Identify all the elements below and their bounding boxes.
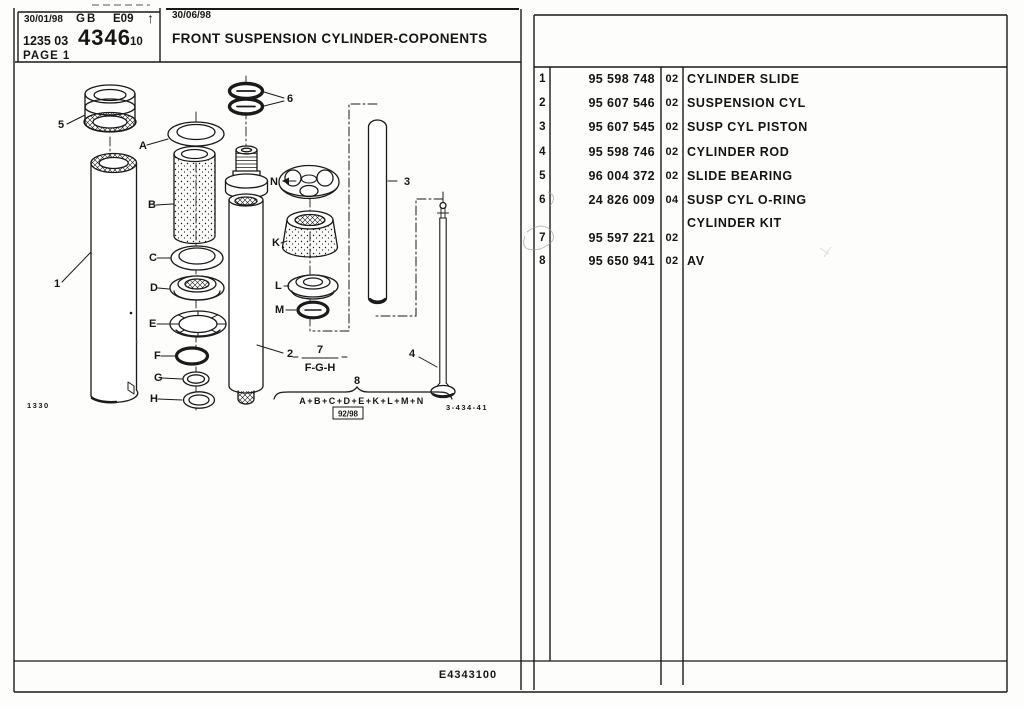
header-country: GB <box>76 13 97 25</box>
footer-document-code: E4343100 <box>408 669 528 681</box>
header-group-no: 4346 <box>78 25 131 51</box>
part-D-bearing <box>170 276 224 300</box>
part-3-cylinder-rod <box>369 120 387 304</box>
callout-G: G <box>154 372 163 384</box>
header-date-left: 30/01/98 <box>24 14 63 25</box>
row-qty: 02 <box>661 170 683 182</box>
callout-F: F <box>154 350 161 362</box>
table-row: 7 95 597 221 02 <box>534 227 1007 249</box>
row-ref: 8 <box>534 255 551 267</box>
part-B-sleeve <box>174 147 215 244</box>
kit7-items: F-G-H <box>305 362 336 374</box>
row-qty: 02 <box>661 97 683 109</box>
part-5-cylinder-slide <box>84 85 136 132</box>
table-row: 8 95 650 941 02 AV <box>534 250 1007 272</box>
kit8-ref: 8 <box>354 375 360 387</box>
row-qty: 04 <box>661 194 683 206</box>
row-description: SUSP CYL O-RING <box>683 193 1007 207</box>
callout-1: 1 <box>54 278 60 290</box>
row-ref: 4 <box>534 146 551 158</box>
kit-7-note: 7 F-G-H <box>293 344 347 374</box>
kit7-ref: 7 <box>317 344 323 356</box>
plate-number: 1330 <box>27 401 50 410</box>
row-ref: 3 <box>534 121 551 133</box>
callout-C: C <box>149 252 157 264</box>
kit8-date-box: 92/98 <box>338 410 359 419</box>
callout-N: N <box>270 176 278 188</box>
row-ref: 7 <box>534 232 551 244</box>
table-row: 2 95 607 546 02 SUSPENSION CYL <box>534 92 1007 114</box>
row-description: CYLINDER SLIDE <box>683 72 1007 86</box>
callout-A: A <box>139 140 147 152</box>
row-qty: 02 <box>661 121 683 133</box>
header-page-label: PAGE 1 <box>23 50 70 62</box>
row-ref: 5 <box>534 170 551 182</box>
part-1-suspension-cylinder <box>91 154 138 404</box>
exploded-view-diagram: 5 1 A B C D E F G H 6 N K L M 2 3 4 7 F-… <box>27 76 488 419</box>
table-row: 6 24 826 009 04 SUSP CYL O-RING <box>534 189 1007 211</box>
callout-E: E <box>149 318 156 330</box>
row-part-number: 95 607 546 <box>551 96 661 110</box>
kit-8-note: 8 A+B+C+D+E+K+L+M+N 92/98 <box>274 375 452 419</box>
part-G-ring <box>183 372 209 386</box>
row-qty: 02 <box>661 255 683 267</box>
table-row: 3 95 607 545 02 SUSP CYL PISTON <box>534 116 1007 138</box>
part-L-collar <box>288 275 338 299</box>
page-title: FRONT SUSPENSION CYLINDER-COPONENTS <box>172 31 488 46</box>
title-date-revision: 30/06/98 <box>172 10 211 21</box>
part-H-ring <box>184 392 215 408</box>
row-description: CYLINDER ROD <box>683 145 1007 159</box>
table-row: 5 96 004 372 02 SLIDE BEARING <box>534 165 1007 187</box>
callout-K: K <box>272 237 280 249</box>
callout-3: 3 <box>404 176 410 188</box>
part-4-rod <box>431 192 455 398</box>
row-part-number: 95 607 545 <box>551 120 661 134</box>
header-box: 30/01/98 GB E09 ↑ 1235 03 4346 10 PAGE 1 <box>18 10 162 62</box>
kit8-items: A+B+C+D+E+K+L+M+N <box>299 396 425 406</box>
part-E-slotted-ring <box>170 311 226 337</box>
callout-H: H <box>150 393 158 405</box>
up-arrow-icon: ↑ <box>147 10 154 26</box>
row-part-number: 24 826 009 <box>551 193 661 207</box>
callout-D: D <box>150 282 158 294</box>
part-M-ring <box>298 302 328 318</box>
callout-L: L <box>275 280 282 292</box>
header-catalog-no: 1235 03 <box>23 34 68 48</box>
part-A-washer <box>168 122 224 146</box>
part-K-cone <box>283 211 338 257</box>
callout-B: B <box>148 199 156 211</box>
table-row: 4 95 598 746 02 CYLINDER ROD <box>534 141 1007 163</box>
row-description: SUSP CYL PISTON <box>683 120 1007 134</box>
row-description: AV <box>683 254 1007 268</box>
part-C-ring <box>171 246 223 270</box>
title-cell: 30/06/98 FRONT SUSPENSION CYLINDER-COPON… <box>166 9 519 62</box>
callout-4: 4 <box>409 348 416 360</box>
drawing-number: 3-434-41 <box>446 403 488 412</box>
row-part-number: 95 598 748 <box>551 72 661 86</box>
row-description: SUSPENSION CYL <box>683 96 1007 110</box>
row-qty: 02 <box>661 146 683 158</box>
header-code: E09 <box>113 13 133 25</box>
callout-6: 6 <box>287 93 293 105</box>
callout-2: 2 <box>287 348 293 360</box>
part-F-ring <box>177 348 208 364</box>
row-part-number: 95 598 746 <box>551 145 661 159</box>
table-row: 1 95 598 748 02 CYLINDER SLIDE <box>534 68 1007 90</box>
callout-5: 5 <box>58 119 64 131</box>
row-ref: 1 <box>534 73 551 85</box>
header-variant: 10 <box>130 36 143 48</box>
row-qty: 02 <box>661 232 683 244</box>
callout-M: M <box>275 304 284 316</box>
row-part-number: 96 004 372 <box>551 169 661 183</box>
row-qty: 02 <box>661 73 683 85</box>
row-ref: 6 <box>534 194 551 206</box>
part-6-o-rings <box>230 84 263 115</box>
row-ref: 2 <box>534 97 551 109</box>
part-2-piston-assembly <box>226 146 268 404</box>
row-description: SLIDE BEARING <box>683 169 1007 183</box>
row-part-number: 95 650 941 <box>551 254 661 268</box>
row-part-number: 95 597 221 <box>551 231 661 245</box>
